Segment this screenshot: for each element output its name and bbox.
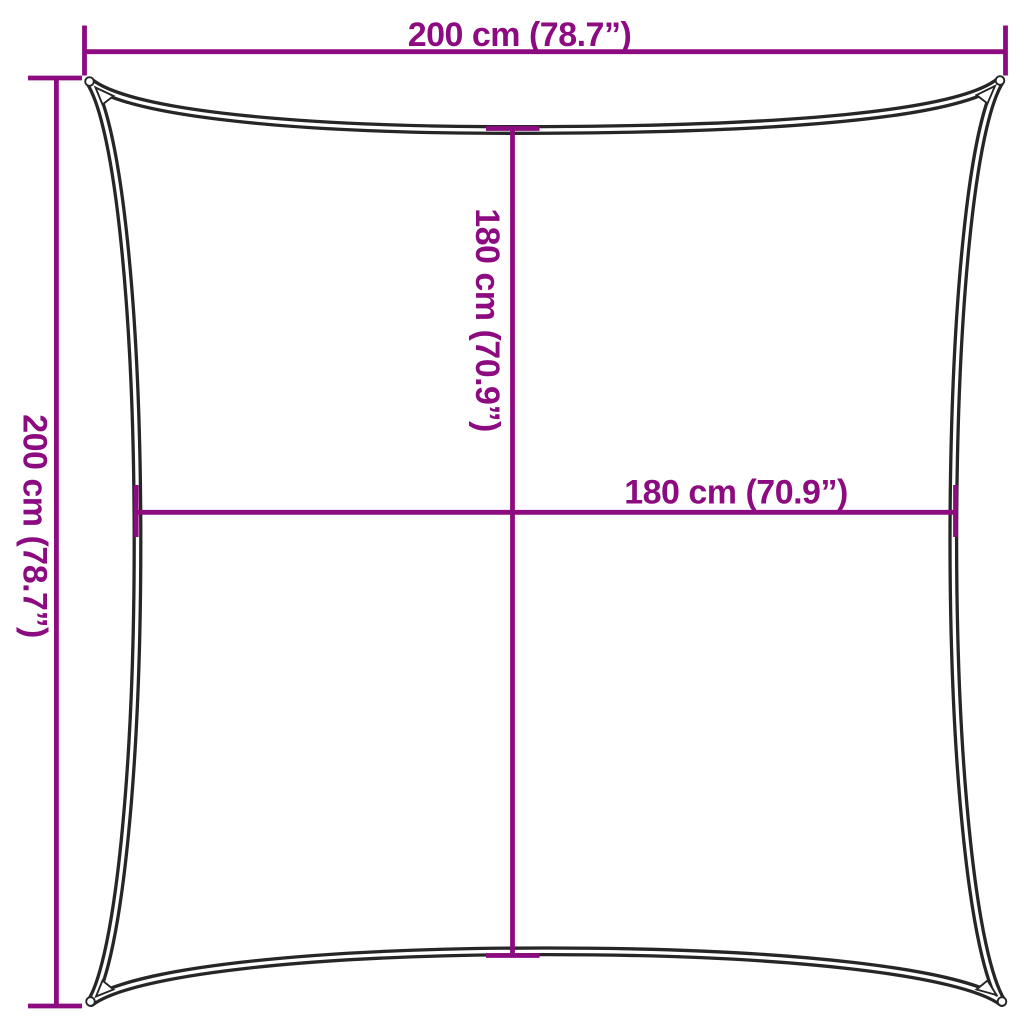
svg-text:200 cm (78.7”): 200 cm (78.7”) — [16, 414, 54, 638]
svg-text:200 cm (78.7”): 200 cm (78.7”) — [408, 16, 632, 54]
svg-text:180 cm (70.9”): 180 cm (70.9”) — [624, 474, 848, 512]
svg-text:180 cm (70.9”): 180 cm (70.9”) — [468, 208, 506, 432]
